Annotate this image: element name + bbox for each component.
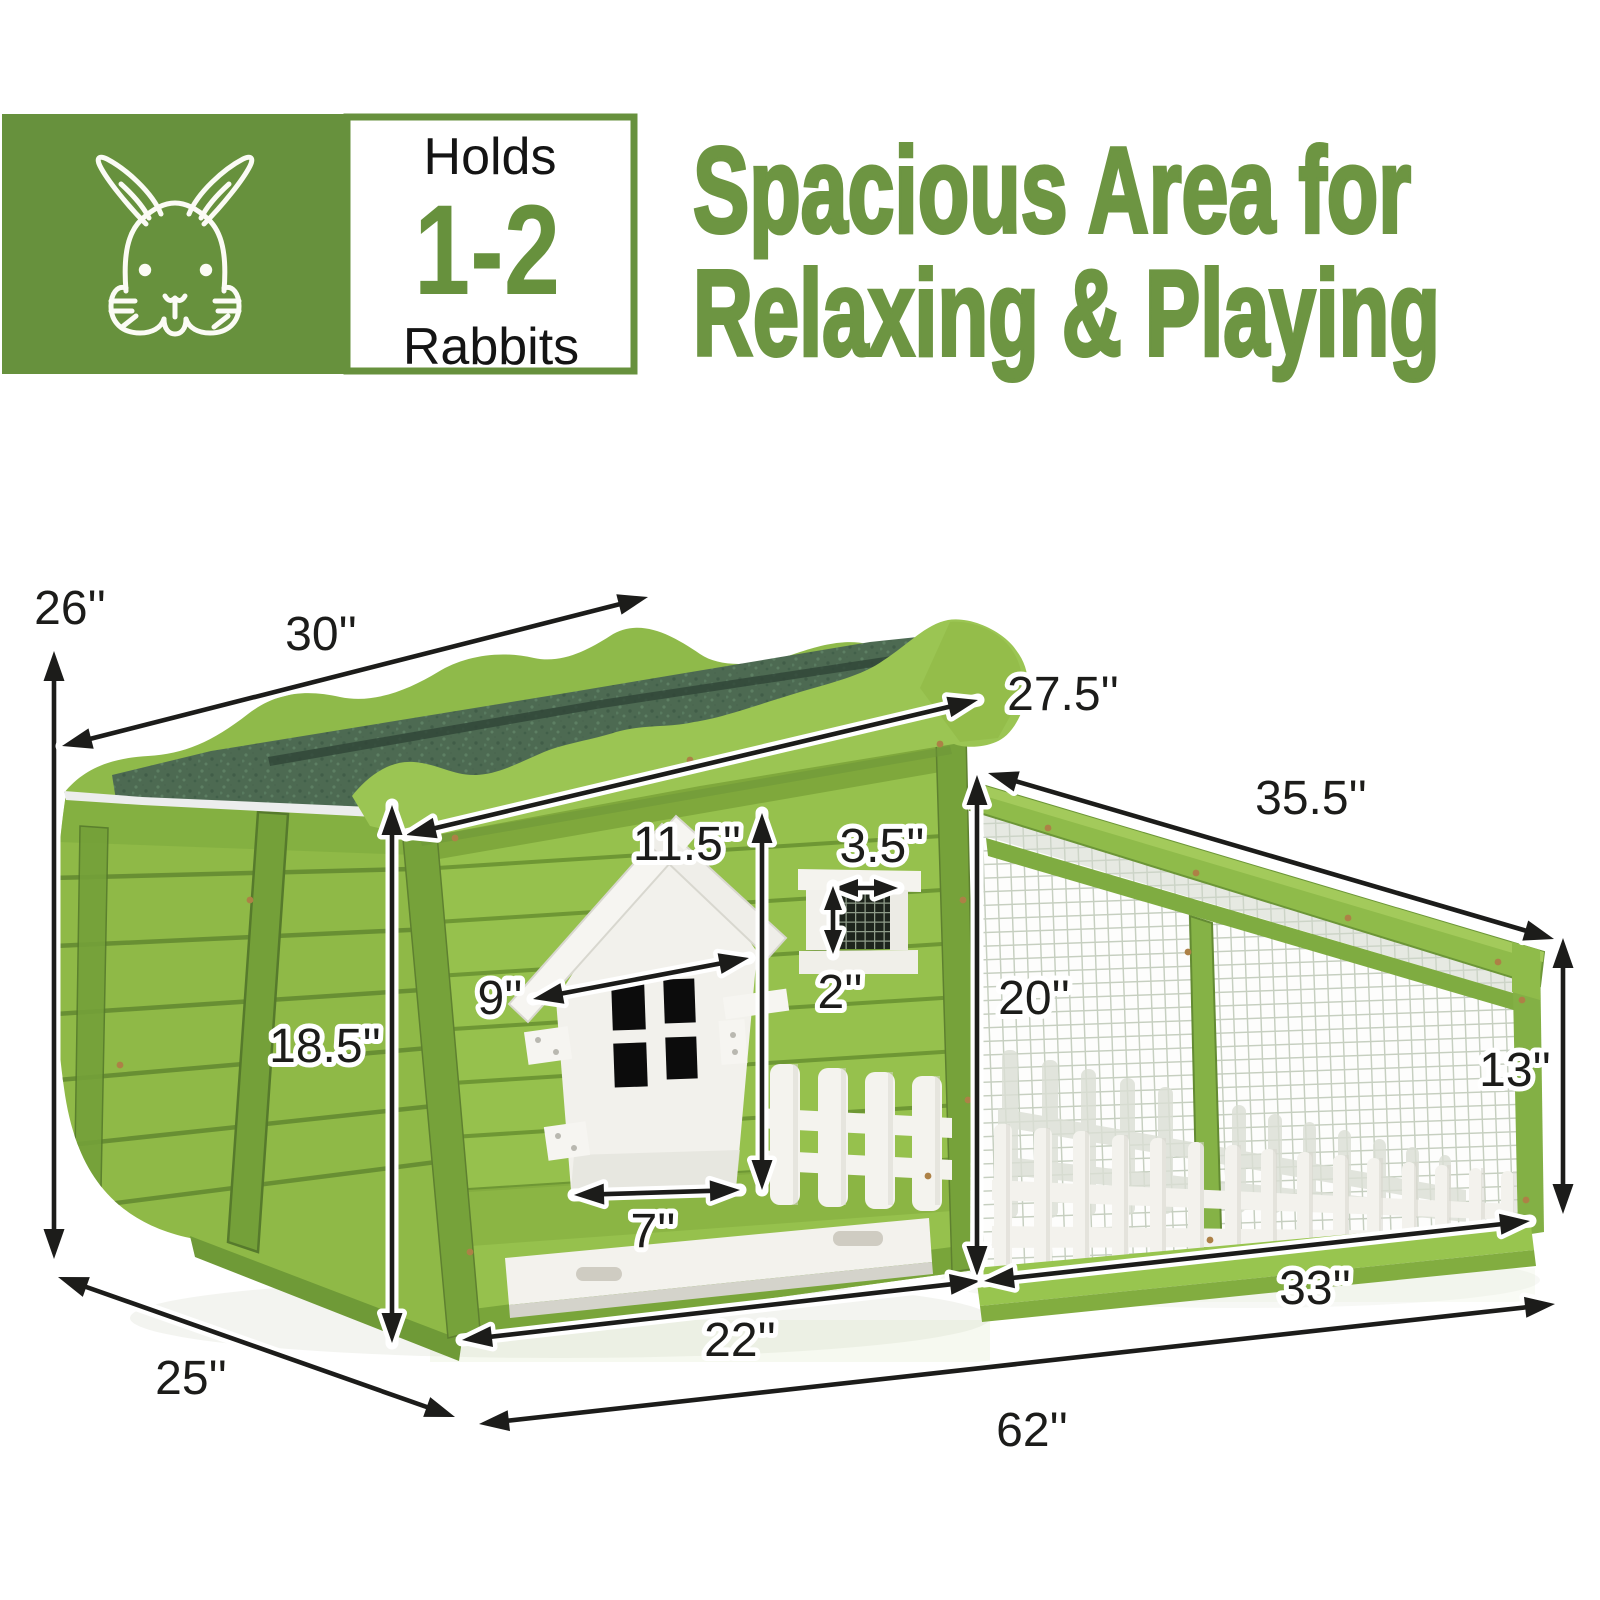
svg-text:Holds: Holds bbox=[424, 128, 557, 186]
svg-text:2'': 2'' bbox=[817, 966, 862, 1019]
svg-text:3.5'': 3.5'' bbox=[839, 820, 924, 873]
svg-text:11.5'': 11.5'' bbox=[633, 818, 741, 871]
svg-text:30'': 30'' bbox=[285, 608, 357, 661]
svg-text:Rabbits: Rabbits bbox=[403, 318, 579, 376]
svg-text:13'': 13'' bbox=[1479, 1044, 1551, 1097]
svg-text:26'': 26'' bbox=[34, 582, 106, 635]
svg-text:7'': 7'' bbox=[630, 1205, 675, 1258]
svg-text:Spacious Area for: Spacious Area for bbox=[693, 122, 1411, 258]
svg-text:62'': 62'' bbox=[996, 1404, 1068, 1457]
svg-text:Relaxing & Playing: Relaxing & Playing bbox=[693, 245, 1440, 381]
svg-text:18.5'': 18.5'' bbox=[269, 1020, 381, 1073]
svg-text:25'': 25'' bbox=[155, 1352, 227, 1405]
svg-text:22'': 22'' bbox=[704, 1314, 776, 1367]
svg-text:20'': 20'' bbox=[998, 972, 1070, 1025]
svg-text:27.5'': 27.5'' bbox=[1007, 668, 1119, 721]
svg-text:35.5'': 35.5'' bbox=[1255, 772, 1367, 825]
svg-text:1-2: 1-2 bbox=[414, 179, 560, 322]
svg-text:33'': 33'' bbox=[1279, 1262, 1351, 1315]
svg-text:9'': 9'' bbox=[477, 972, 522, 1025]
